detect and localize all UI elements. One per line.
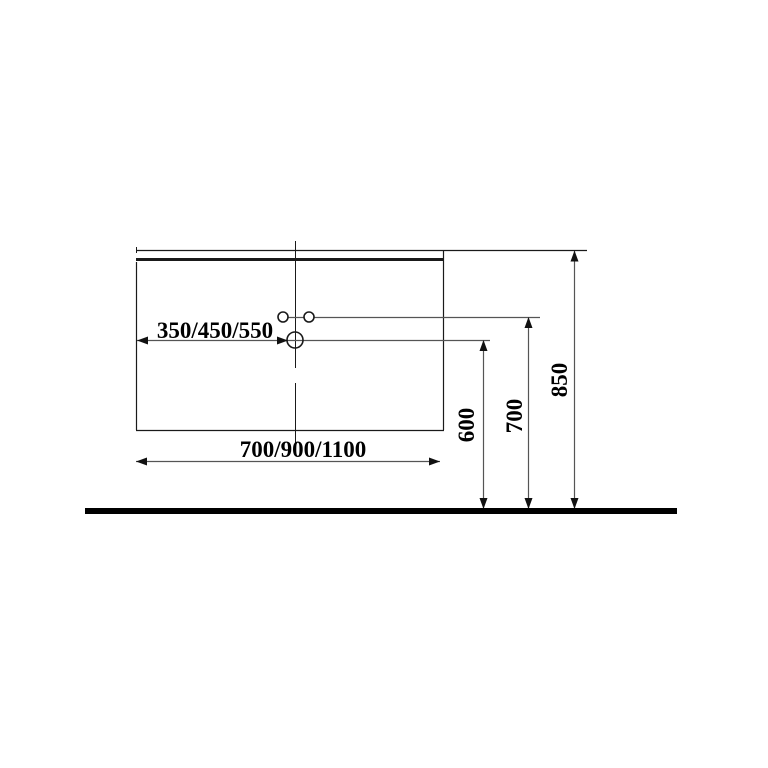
arrowhead-up-icon bbox=[525, 317, 533, 328]
arrowhead-left-icon bbox=[136, 458, 147, 466]
arrowhead-up-icon bbox=[571, 251, 579, 262]
dim-height-700: 700 bbox=[502, 317, 532, 509]
arrowhead-down-icon bbox=[525, 498, 533, 509]
arrowhead-down-icon bbox=[480, 498, 488, 509]
height-600-label: 600 bbox=[454, 408, 479, 443]
height-700-label: 700 bbox=[502, 399, 527, 434]
dim-height-850: 850 bbox=[547, 251, 578, 510]
tap-hole-right-icon bbox=[304, 312, 314, 322]
arrowhead-down-icon bbox=[571, 498, 579, 509]
dim-basin-offset: 350/450/550 bbox=[137, 318, 288, 345]
dim-height-600: 600 bbox=[454, 340, 487, 509]
technical-drawing-canvas: 350/450/550 700/900/1100 600 700 bbox=[0, 0, 768, 768]
tap-hole-left-icon bbox=[278, 312, 288, 322]
floor-line bbox=[85, 508, 677, 514]
arrowhead-right-icon bbox=[277, 337, 288, 345]
dim-cabinet-width: 700/900/1100 bbox=[136, 437, 440, 466]
vanity-dimension-drawing: 350/450/550 700/900/1100 600 700 bbox=[0, 0, 768, 768]
arrowhead-left-icon bbox=[137, 337, 148, 345]
height-850-label: 850 bbox=[547, 363, 572, 398]
arrowhead-up-icon bbox=[480, 340, 488, 351]
cabinet-width-label: 700/900/1100 bbox=[240, 437, 367, 462]
arrowhead-right-icon bbox=[429, 458, 440, 466]
basin-offset-label: 350/450/550 bbox=[157, 318, 273, 343]
